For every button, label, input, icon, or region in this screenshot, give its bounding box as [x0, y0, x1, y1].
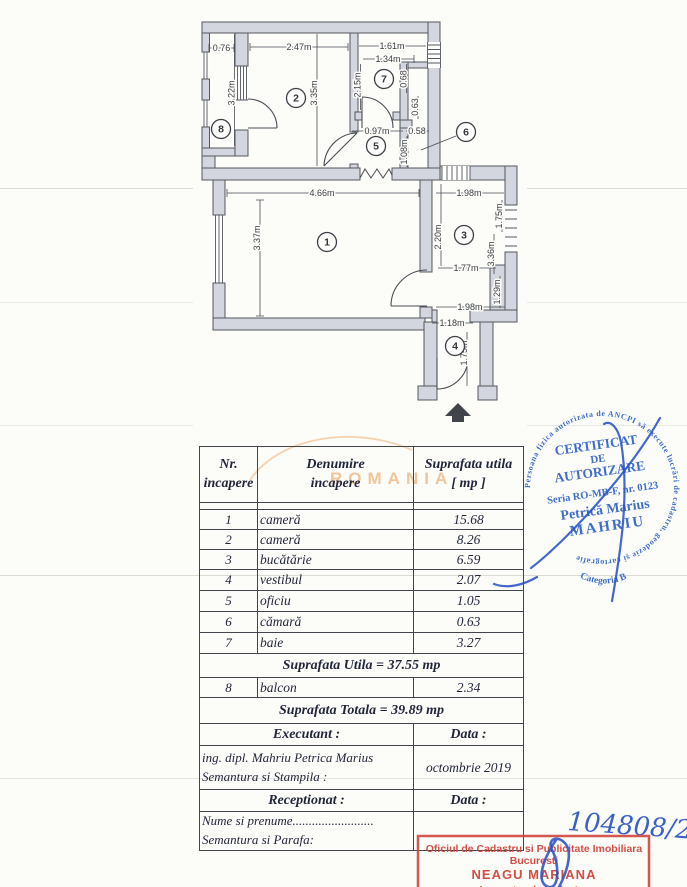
stamp-ring-text: Persoana fizica autorizata de ANCPI să e…	[523, 409, 681, 567]
cell-area: 0.63	[414, 612, 524, 633]
name-dotted-line: Nume si prenume.........................	[202, 812, 411, 831]
cell-name: cameră	[258, 530, 414, 550]
total-text: Suprafata Totala = 39.89 mp	[200, 698, 524, 724]
executant-date: octombrie 2019	[414, 746, 524, 790]
dim-label: 0.58	[408, 126, 426, 136]
signature-stroke	[531, 418, 660, 568]
room-number: 5	[373, 141, 379, 153]
executant-body-row: ing. dipl. Mahriu Petrica Marius Semantu…	[200, 746, 524, 790]
cell-nr: 2	[200, 530, 258, 550]
spacer-row	[200, 503, 524, 510]
dim-label: 1.29m	[492, 279, 502, 304]
stamp-line: DE	[590, 452, 607, 466]
receptionat-details: Nume si prenume.........................…	[200, 812, 414, 851]
dim-label: 1.98m	[456, 188, 481, 198]
cell-name: oficiu	[258, 591, 414, 612]
signature-over-red-stamp	[542, 839, 569, 887]
room-number: 8	[218, 124, 224, 136]
authorization-round-stamp: Persoana fizica autorizata de ANCPI să e…	[523, 409, 681, 601]
cell-nr: 3	[200, 550, 258, 570]
cell-nr: 7	[200, 633, 258, 654]
cell-name: cameră	[258, 510, 414, 530]
table-row: 7 baie 3.27	[200, 633, 524, 654]
header-denumire: Denumire incapere	[258, 447, 414, 503]
wall-break-zigzag	[360, 169, 392, 178]
dim-label: 4.66m	[309, 188, 334, 198]
stamp-serial: Seria RO-MB-F, nr. 0123	[546, 480, 659, 506]
cell-name: balcon	[258, 678, 414, 698]
subtotal-row: Suprafata Utila = 37.55 mp	[200, 654, 524, 678]
cell-area: 2.07	[414, 570, 524, 591]
cell-nr: 5	[200, 591, 258, 612]
scanned-cadastral-document: ROMANIA	[0, 0, 687, 887]
header-text: incapere	[202, 475, 255, 493]
table-row: 4 vestibul 2.07	[200, 570, 524, 591]
dim-label: 0.68	[399, 70, 409, 88]
header-nr: Nr. incapere	[200, 447, 258, 503]
cell-nr: 8	[200, 678, 258, 698]
dim-label: 1.75m	[494, 203, 504, 228]
scan-artifact-line	[0, 302, 687, 303]
dim-label: 1.34m	[375, 54, 400, 64]
room-number: 4	[452, 341, 458, 353]
room-number: 1	[324, 237, 330, 249]
header-text: Denumire	[260, 456, 411, 474]
dim-label: 3.22m	[227, 80, 237, 105]
plan-background	[193, 6, 527, 426]
total-row: Suprafata Totala = 39.89 mp	[200, 698, 524, 724]
dim-label: 3.36m	[486, 241, 496, 266]
cell-name: bucătărie	[258, 550, 414, 570]
dim-label: 1.61m	[379, 41, 404, 51]
cell-name: vestibul	[258, 570, 414, 591]
cell-name: cămară	[258, 612, 414, 633]
plan-dimension-labels: 0.76 3.22m 2.47m 3.35m 1.61m 1.34m 2.15m…	[213, 41, 504, 366]
data-label: Data :	[414, 790, 524, 812]
table-row: 1 cameră 15.68	[200, 510, 524, 530]
header-text: [ mp ]	[416, 475, 521, 493]
executant-signature-label: Semantura si Stampila :	[202, 768, 411, 787]
file-number-text: 104808/2019	[567, 807, 687, 849]
cell-area: 1.05	[414, 591, 524, 612]
cell-nr: 1	[200, 510, 258, 530]
scan-artifact-line	[0, 425, 687, 426]
room-number: 7	[381, 74, 387, 86]
executant-label: Executant :	[200, 724, 414, 746]
header-text: Nr.	[202, 456, 255, 474]
dim-label: 0.97m	[364, 126, 389, 136]
cell-nr: 6	[200, 612, 258, 633]
cell-area: 8.26	[414, 530, 524, 550]
stamp-center-text: CERTIFICAT DE AUTORIZARE Seria RO-MB-F, …	[539, 430, 664, 543]
dim-label: 1.08m	[399, 139, 409, 164]
header-text: Suprafata utila	[416, 456, 521, 474]
plan-walls	[202, 22, 517, 400]
executant-details: ing. dipl. Mahriu Petrica Marius Semantu…	[200, 746, 414, 790]
header-suprafata: Suprafata utila [ mp ]	[414, 447, 524, 503]
plan-doors	[248, 97, 468, 389]
table-header-row: Nr. incapere Denumire incapere Suprafata…	[200, 447, 524, 503]
room-number: 2	[293, 93, 299, 105]
dim-label: 1.75m	[459, 340, 469, 365]
executant-header-row: Executant : Data :	[200, 724, 524, 746]
header-text: incapere	[260, 475, 411, 493]
balcony-row: 8 balcon 2.34	[200, 678, 524, 698]
cell-area: 6.59	[414, 550, 524, 570]
cell-area: 2.34	[414, 678, 524, 698]
stamp-line: CERTIFICAT	[554, 432, 639, 458]
dim-label: 1.18m	[439, 318, 464, 328]
table-row: 3 bucătărie 6.59	[200, 550, 524, 570]
dim-label: 3.37m	[252, 225, 262, 250]
subtotal-text: Suprafata Utila = 37.55 mp	[200, 654, 524, 678]
room-number: 3	[461, 230, 467, 242]
table-row: 2 cameră 8.26	[200, 530, 524, 550]
table-row: 6 cămară 0.63	[200, 612, 524, 633]
registry-number-handwriting: 104808/2019	[567, 807, 687, 849]
entrance-arrow-icon	[445, 403, 471, 422]
cell-area: 15.68	[414, 510, 524, 530]
executant-name: ing. dipl. Mahriu Petrica Marius	[202, 749, 411, 768]
data-label: Data :	[414, 724, 524, 746]
plan-room-numbers: 1 2 3 4 5 6 7 8	[212, 70, 476, 356]
stamp-name: Petrică Marius	[560, 497, 652, 524]
dim-label: 2.15m	[353, 72, 363, 97]
receptionat-header-row: Receptionat : Data :	[200, 790, 524, 812]
receptionat-body-row: Nume si prenume.........................…	[200, 812, 524, 851]
red-stamp-name: NEAGU MARIANA	[472, 867, 597, 882]
stamp-category-text: Categoria B	[579, 571, 629, 586]
cell-nr: 4	[200, 570, 258, 591]
dim-label: 0.76	[213, 43, 231, 53]
stamp-line: AUTORIZARE	[553, 458, 645, 486]
cell-name: baie	[258, 633, 414, 654]
table-row: 5 oficiu 1.05	[200, 591, 524, 612]
plan-windows	[202, 42, 518, 283]
dim-label: 2.47m	[286, 42, 311, 52]
dim-label: 3.35m	[309, 80, 319, 105]
receptionat-date-cell	[414, 812, 524, 851]
room-number: 6	[463, 127, 469, 139]
dim-label: 1.77m	[453, 263, 478, 273]
plan-dimension-lines	[209, 34, 505, 386]
receptionat-label: Receptionat :	[200, 790, 414, 812]
signature-label: Semantura si Parafa:	[202, 831, 411, 850]
dim-label: 1.98m	[457, 302, 482, 312]
area-table: Nr. incapere Denumire incapere Suprafata…	[199, 446, 524, 851]
dim-label: 2.20m	[433, 224, 443, 249]
cell-area: 3.27	[414, 633, 524, 654]
scan-artifact-line	[0, 188, 687, 189]
stamp-name: MAHRIU	[569, 513, 647, 539]
dim-label: 0.63	[410, 98, 420, 116]
red-stamp-line: Bucuresti	[510, 855, 559, 867]
